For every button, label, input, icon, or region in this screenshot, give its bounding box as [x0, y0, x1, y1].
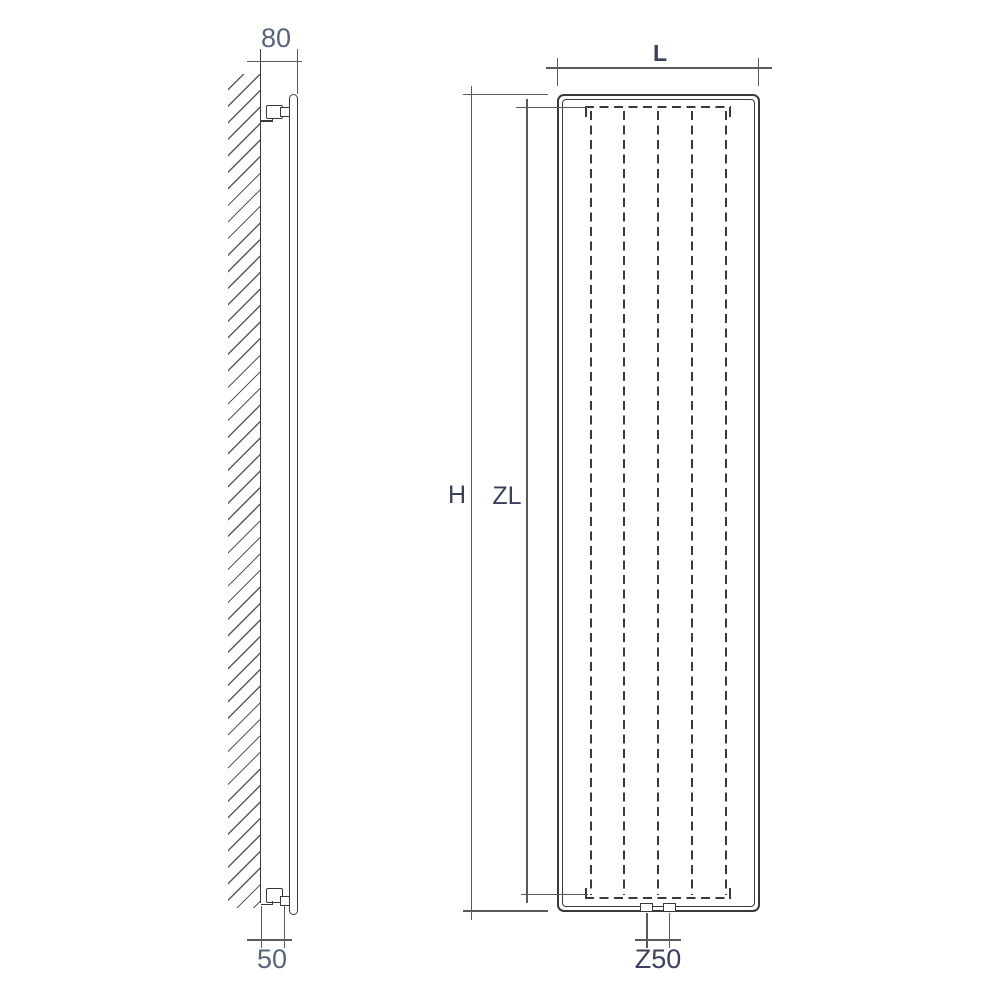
bracket-top-lip-stub [272, 118, 273, 122]
dim-50-extension-right [284, 905, 285, 948]
dim-ZL-extension-top [516, 107, 588, 108]
dim-Z50-extension-right [669, 913, 670, 948]
wall-face-line [260, 49, 262, 903]
dim-80-line [247, 61, 302, 62]
dim-L-extension-right [758, 58, 759, 86]
header-corner-bottom-right [729, 888, 731, 899]
connection-nozzle-right [663, 903, 676, 913]
wall-hatching [228, 74, 261, 908]
dim-Z50-line [635, 939, 681, 940]
radiator-technical-drawing: 80 50 L H ZL Z50 [0, 0, 1000, 1000]
fin-dashed-line-4 [691, 111, 693, 895]
header-corner-top-left [585, 107, 587, 118]
dim-L-line [546, 67, 772, 68]
dim-50-extension-left [261, 906, 262, 948]
dim-label-ZL: ZL [492, 484, 521, 509]
dim-label-H: H [448, 483, 466, 508]
header-corner-top-right [729, 107, 731, 118]
bracket-bottom-lip-stub [272, 901, 273, 905]
connection-nozzle-left [640, 903, 653, 913]
fin-dashed-line-5 [725, 111, 727, 895]
bracket-top-pipe-stub [280, 107, 290, 117]
dim-label-80: 80 [261, 25, 291, 52]
fin-dashed-line-1 [590, 111, 592, 895]
dim-label-Z50: Z50 [635, 946, 682, 973]
header-dashed-bottom [585, 897, 731, 899]
dim-label-L: L [653, 42, 667, 65]
dim-H-extension-top [463, 94, 548, 95]
dim-80-extension-right [297, 49, 298, 94]
dim-ZL-line [526, 99, 527, 903]
dim-ZL-extension-bottom [521, 894, 589, 895]
dim-Z50-extension-left [646, 913, 647, 948]
dim-L-extension-left [557, 58, 558, 86]
dim-H-extension-bottom [463, 910, 548, 911]
radiator-side-profile [289, 94, 299, 916]
dim-H-line [471, 86, 472, 920]
fin-dashed-line-3 [657, 111, 659, 895]
fin-dashed-line-2 [623, 111, 625, 895]
header-dashed-top [585, 106, 731, 108]
dim-label-50: 50 [257, 946, 287, 973]
